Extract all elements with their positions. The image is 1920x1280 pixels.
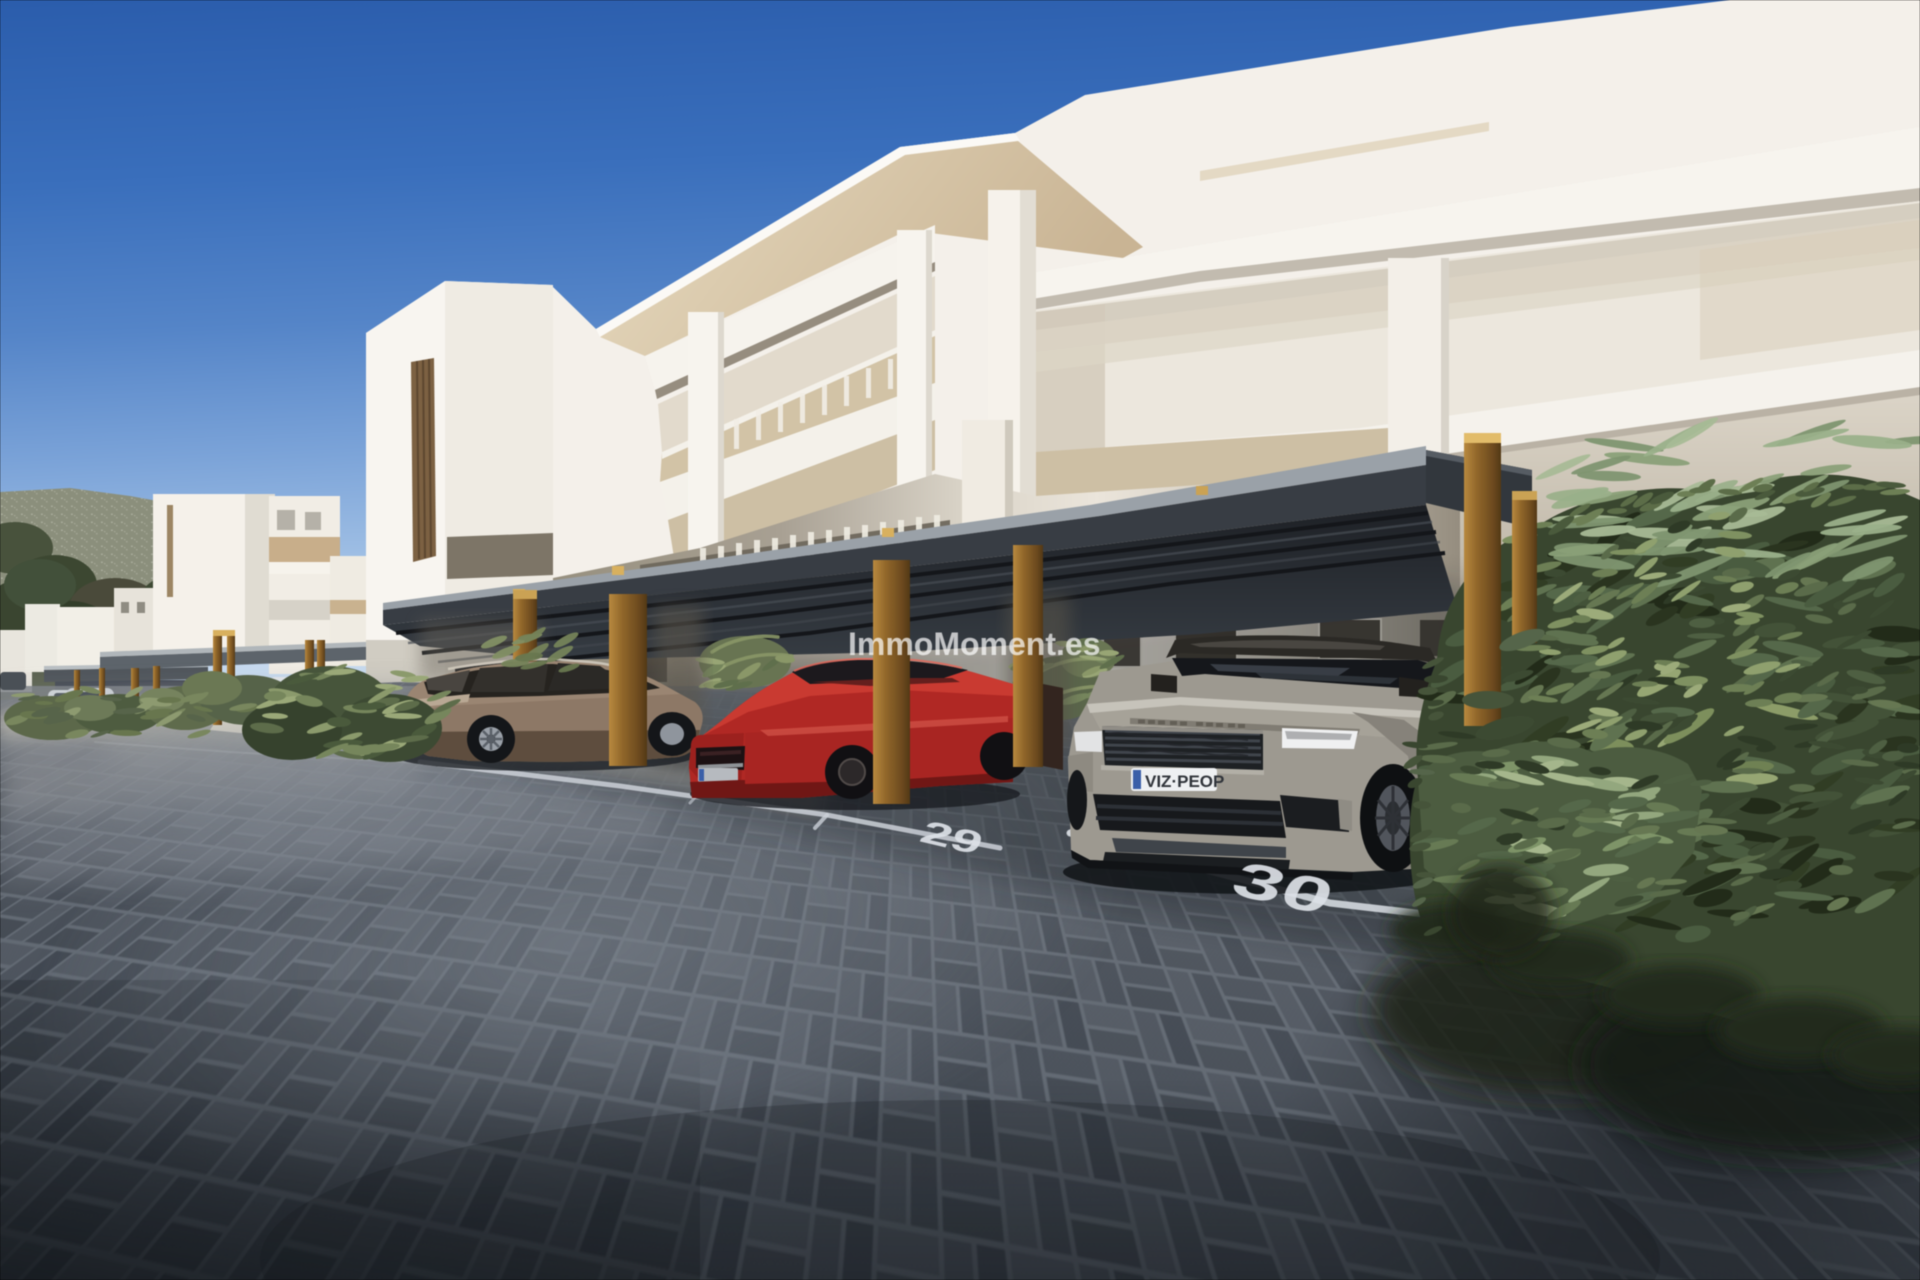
svg-text:VIZ·PEOP: VIZ·PEOP <box>1145 772 1224 791</box>
svg-text:ImmoMoment.es: ImmoMoment.es <box>848 626 1100 662</box>
